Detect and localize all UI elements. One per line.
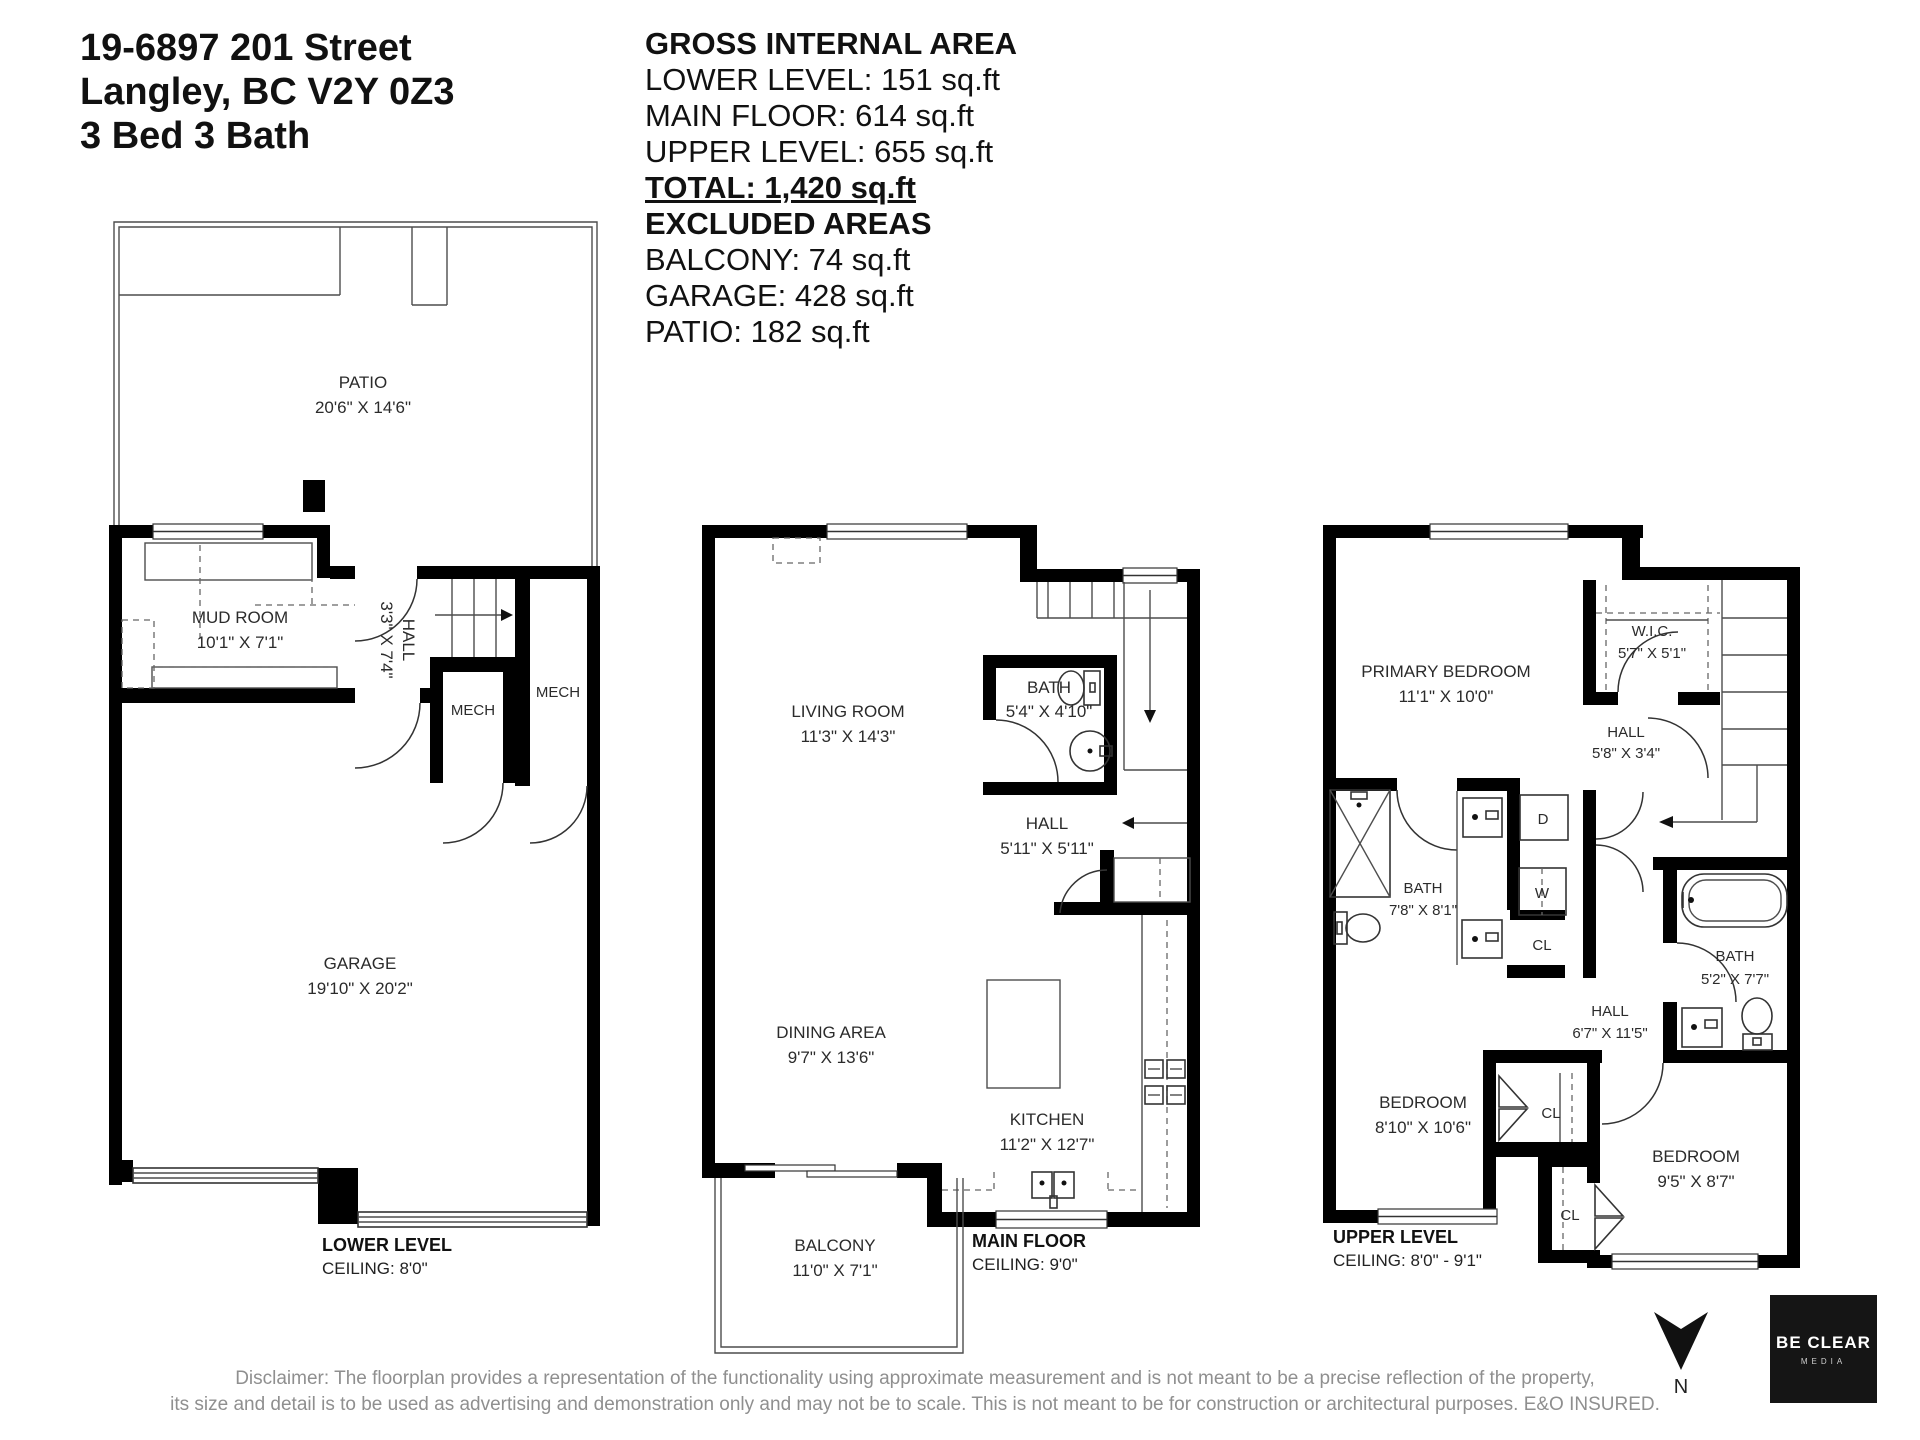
mech-left-label: MECH <box>451 702 495 719</box>
summary-balcony: BALCONY: 74 sq.ft <box>645 242 1017 278</box>
living-nook-dashed <box>773 538 820 563</box>
mudroom-dims: 10'1" X 7'1" <box>197 633 284 652</box>
main-bath <box>983 655 1117 795</box>
cl-bottom-label: CL <box>1560 1207 1579 1224</box>
dining-area-dims: 9'7" X 13'6" <box>788 1048 875 1067</box>
logo-line-2: MEDIA <box>1801 1357 1846 1366</box>
summary-patio: PATIO: 182 sq.ft <box>645 314 1017 350</box>
property-address: 19-6897 201 Street Langley, BC V2Y 0Z3 3… <box>80 26 455 158</box>
address-line-3: 3 Bed 3 Bath <box>80 114 455 158</box>
upper-level-ceiling: CEILING: 8'0" - 9'1" <box>1333 1251 1482 1270</box>
bedroom-right-label: BEDROOM <box>1652 1147 1740 1166</box>
patio-outline <box>114 222 597 566</box>
floor-plan-lower-level: PATIO 20'6" X 14'6" <box>95 185 600 1290</box>
disclaimer-line-2: its size and detail is to be used as adv… <box>60 1392 1770 1418</box>
address-line-1: 19-6897 201 Street <box>80 26 455 70</box>
upper-hall-top-label: HALL <box>1607 724 1645 741</box>
floorplan-page: 19-6897 201 Street Langley, BC V2Y 0Z3 3… <box>0 0 1920 1440</box>
bedroom-right-door-arc <box>1602 1063 1663 1124</box>
kitchen-dims: 11'2" X 12'7" <box>1000 1135 1095 1154</box>
main-walls <box>702 525 1200 1227</box>
bedroom-left-label: BEDROOM <box>1379 1093 1467 1112</box>
upper-bath2-dims: 5'2" X 7'7" <box>1701 971 1769 988</box>
garage-dims: 19'10" X 20'2" <box>307 979 413 998</box>
bedroom-left-dims: 8'10" X 10'6" <box>1375 1118 1471 1137</box>
area-summary: GROSS INTERNAL AREA LOWER LEVEL: 151 sq.… <box>645 26 1017 350</box>
upper-level-title: UPPER LEVEL <box>1333 1227 1458 1247</box>
summary-total: TOTAL: 1,420 sq.ft <box>645 170 1017 206</box>
lower-walls <box>109 525 600 1226</box>
mech-right-door-arc <box>530 786 587 843</box>
patio-dims: 20'6" X 14'6" <box>315 398 411 417</box>
garage-doors <box>133 1168 587 1227</box>
summary-garage: GARAGE: 428 sq.ft <box>645 278 1017 314</box>
balcony-label: BALCONY <box>794 1236 875 1255</box>
main-bath-label: BATH <box>1027 678 1071 697</box>
patio-post <box>303 480 325 512</box>
upper-hall-mid-dims: 6'7" X 11'5" <box>1572 1025 1647 1042</box>
wic-label: W.I.C. <box>1632 623 1673 640</box>
summary-upper-level: UPPER LEVEL: 655 sq.ft <box>645 134 1017 170</box>
hall-dims: 3'3" X 7'4" <box>377 601 396 678</box>
main-bath-dims: 5'4" X 4'10" <box>1006 702 1093 721</box>
upper-hall-top-dims: 5'8" X 3'4" <box>1592 745 1660 762</box>
living-room-label: LIVING ROOM <box>791 702 904 721</box>
disclaimer-line-1: Disclaimer: The floorplan provides a rep… <box>60 1366 1770 1392</box>
ensuite-bath <box>1330 790 1502 965</box>
north-arrow-icon <box>1652 1310 1710 1372</box>
lower-level-title: LOWER LEVEL <box>322 1235 452 1255</box>
kitchen-label: KITCHEN <box>1010 1110 1085 1129</box>
north-compass: N <box>1650 1310 1712 1399</box>
summary-main-floor: MAIN FLOOR: 614 sq.ft <box>645 98 1017 134</box>
wic-dims: 5'7" X 5'1" <box>1618 645 1686 662</box>
garage-label: GARAGE <box>324 954 397 973</box>
mech-left-door-arc <box>443 783 503 843</box>
primary-bedroom-label: PRIMARY BEDROOM <box>1361 662 1530 681</box>
ensuite-bath-dims: 7'8" X 8'1" <box>1389 902 1457 919</box>
upper-bath2-label: BATH <box>1716 948 1755 965</box>
dryer-label: D <box>1538 811 1549 828</box>
washer-label: W <box>1535 885 1550 902</box>
main-floor-ceiling: CEILING: 9'0" <box>972 1255 1078 1274</box>
kitchen-fixtures <box>942 915 1185 1212</box>
summary-title: GROSS INTERNAL AREA <box>645 26 1017 62</box>
disclaimer: Disclaimer: The floorplan provides a rep… <box>60 1366 1770 1418</box>
mudroom-label: MUD ROOM <box>192 608 288 627</box>
living-room-dims: 11'3" X 14'3" <box>801 727 896 746</box>
main-hall-label: HALL <box>1026 814 1069 833</box>
summary-lower-level: LOWER LEVEL: 151 sq.ft <box>645 62 1017 98</box>
garage-entry-door-arc <box>355 703 420 768</box>
logo-line-1: BE CLEAR <box>1776 1333 1871 1353</box>
summary-excluded-title: EXCLUDED AREAS <box>645 206 1017 242</box>
bedroom-right-dims: 9'5" X 8'7" <box>1657 1172 1734 1191</box>
hall-label: HALL <box>399 619 418 662</box>
mudroom-window <box>153 524 263 539</box>
mech-right-label: MECH <box>536 684 580 701</box>
beclear-media-logo: BE CLEAR MEDIA <box>1770 1295 1877 1403</box>
closet-label: CL <box>1532 937 1551 954</box>
floor-plan-upper-level: W.I.C. 5'7" X 5'1" PRIMARY BEDROOM 11'1"… <box>1323 520 1800 1290</box>
balcony-dims: 11'0" X 7'1" <box>792 1261 877 1280</box>
upper-hall-mid-label: HALL <box>1591 1003 1629 1020</box>
ensuite-bath-label: BATH <box>1404 880 1443 897</box>
dining-area-label: DINING AREA <box>776 1023 886 1042</box>
primary-bedroom-dims: 11'1" X 10'0" <box>1399 687 1494 706</box>
main-floor-title: MAIN FLOOR <box>972 1231 1086 1251</box>
stairs-lower <box>435 579 513 657</box>
main-hall-dims: 5'11" X 5'11" <box>1000 839 1094 858</box>
patio-label: PATIO <box>339 373 388 392</box>
address-line-2: Langley, BC V2Y 0Z3 <box>80 70 455 114</box>
lower-level-ceiling: CEILING: 8'0" <box>322 1259 428 1278</box>
cl-top-label: CL <box>1541 1105 1560 1122</box>
north-label: N <box>1650 1376 1712 1399</box>
floor-plan-main-floor: BATH 5'4" X 4'10" LIVING ROOM 11'3" X 14… <box>702 520 1230 1390</box>
